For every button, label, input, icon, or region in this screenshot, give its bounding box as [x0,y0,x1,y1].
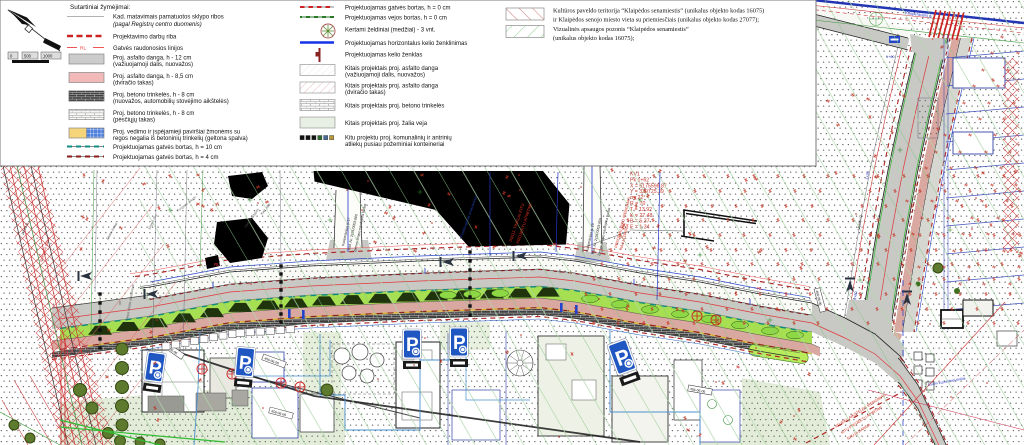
svg-text:Proj. asfalto danga, h - 8,5 c: Proj. asfalto danga, h - 8,5 cm [113,74,193,80]
svg-text:1+60: 1+60 [886,55,895,59]
svg-text:Kertami želdiniai (medžiai) -: Kertami želdiniai (medžiai) - 3 vnt. [345,27,436,33]
svg-text:(pagal Registrų centro duomeni: (pagal Registrų centro duomenis) [113,22,202,28]
svg-text:ir Klaipėdos senojo miesto vie: ir Klaipėdos senojo miesto vieta su prie… [553,17,759,24]
svg-text:RL: RL [553,242,559,247]
svg-text:RL: RL [214,262,220,267]
svg-text:(dviračio takas): (dviračio takas) [345,90,386,96]
svg-text:Projektuojamas gatvės bortas,: Projektuojamas gatvės bortas, h = 0 cm [345,5,451,11]
svg-text:Kitais projektais proj. žalia: Kitais projektais proj. žalia veja [345,121,428,127]
svg-text:500: 500 [24,54,32,59]
svg-text:RL: RL [80,46,86,52]
svg-text:Projektuojamas vejos bortas, h: Projektuojamas vejos bortas, h = 0 cm [345,15,447,21]
svg-text:1000: 1000 [43,54,53,59]
svg-text:Projektuojamas kelio ženklas: Projektuojamas kelio ženklas [345,53,422,59]
svg-text:Proj. vedimo ir įspėjamieji pa: Proj. vedimo ir įspėjamieji paviršiai žm… [113,130,240,136]
svg-text:(važiuojamoji dalis, nuovažos): (važiuojamoji dalis, nuovažos) [345,73,425,79]
svg-text:Projektuojamas gatvės bortas,: Projektuojamas gatvės bortas, h = 10 cm [113,145,222,151]
svg-text:Vizualinės apsaugos pozonis “K: Vizualinės apsaugos pozonis “Klaipėdos s… [553,26,689,33]
svg-text:Kitais projektais proj. asfalt: Kitais projektais proj. asfalto danga [345,84,439,90]
svg-text:Proj. betono trinkelės, h - 8: Proj. betono trinkelės, h - 8 cm [113,111,194,117]
svg-text:regos negalia iš betoninių tri: regos negalia iš betoninių trinkelių (ge… [113,136,248,142]
svg-text:(pėsčiųjų takas): (pėsčiųjų takas) [113,118,155,124]
svg-text:Proj. asfalto danga, h - 12 cm: Proj. asfalto danga, h - 12 cm [113,56,191,62]
svg-text:Projektavimo darbų riba: Projektavimo darbų riba [113,35,177,41]
svg-text:Kultūros paveldo teritorija “K: Kultūros paveldo teritorija “Klaipėdos s… [553,8,764,15]
svg-text:Projektuojamas gatvės bortas,: Projektuojamas gatvės bortas, h = 4 cm [113,155,219,161]
svg-text:Kitu projektu proj. komunalini: Kitu projektu proj. komunalinių ir antri… [345,136,452,142]
svg-text:Proj. betono trinkelės, h - 8: Proj. betono trinkelės, h - 8 cm [113,93,194,99]
svg-text:(dviračio takas): (dviračio takas) [113,81,154,87]
svg-text:(unikalus objekto kodas 16075): (unikalus objekto kodas 16075); [553,35,635,42]
svg-text:Kitais projektais proj. asfalt: Kitais projektais proj. asfalto danga [345,66,439,72]
svg-text:(važiuojamoji dalis, nuovažos): (važiuojamoji dalis, nuovažos) [113,62,193,68]
svg-text:Kitais projektais proj. betono: Kitais projektais proj. betono trinkelės [345,104,444,110]
svg-text:RL: RL [757,286,763,291]
svg-text:Gatvės raudonosios linijos: Gatvės raudonosios linijos [113,46,183,52]
svg-text:Projektuojamas horizontalus ke: Projektuojamas horizontalus kelio ženkli… [345,41,467,47]
svg-text:Kad. matavimais pamatuotos skl: Kad. matavimais pamatuotos sklypo ribos [113,15,224,21]
svg-text:atliekų pusiau požeminiai kont: atliekų pusiau požeminiai konteineriai [345,142,444,148]
svg-text:Sutartiniai žymėjimai:: Sutartiniai žymėjimai: [70,4,131,11]
svg-text:(nuovažos, automobilių stovėji: (nuovažos, automobilių stovėjimo aikštel… [113,99,229,105]
